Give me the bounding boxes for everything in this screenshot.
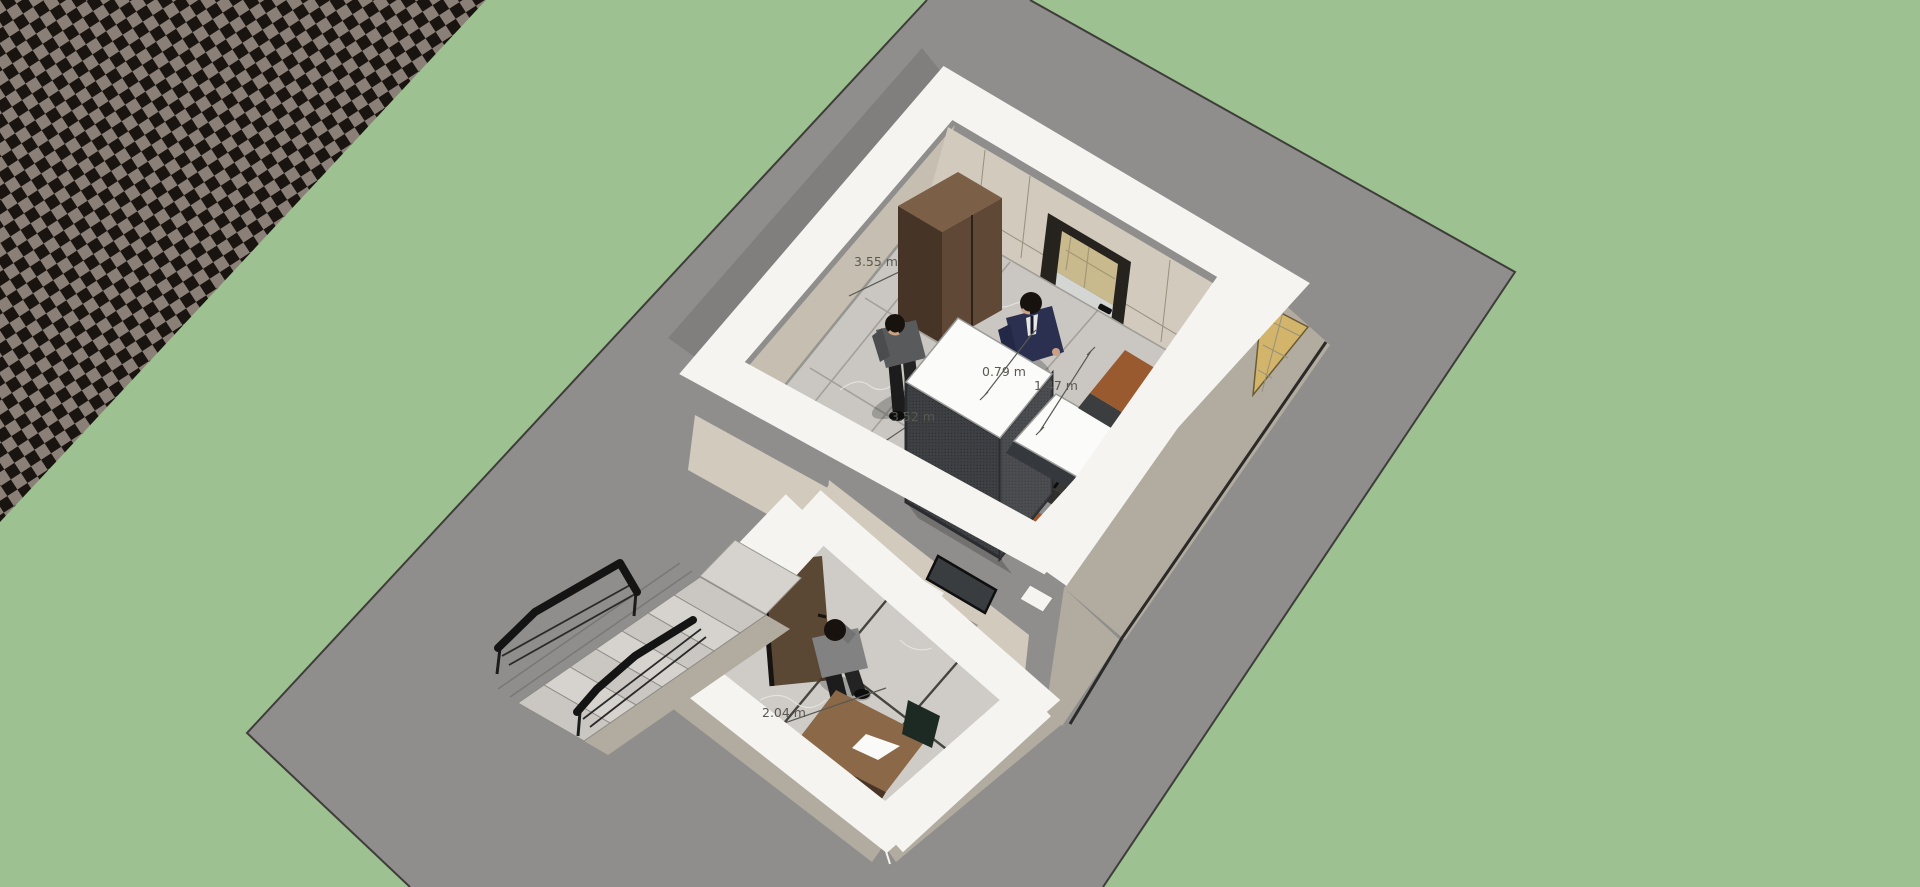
scene-canvas[interactable]: 3.55 m 3.52 m 0.79 m 1.47 m 2.04 m <box>0 0 1920 887</box>
model-viewport[interactable]: 3.55 m 3.52 m 0.79 m 1.47 m 2.04 m <box>0 0 1920 887</box>
hand <box>1052 348 1060 356</box>
dim-label-wall-upper: 3.55 m <box>854 254 898 269</box>
head <box>885 314 905 334</box>
dim-label-floor-gap: 1.47 m <box>1034 378 1078 393</box>
dim-label-floor-upper: 3.52 m <box>891 409 935 424</box>
dim-label-floor-lower: 2.04 m <box>762 705 806 720</box>
wardrobe[interactable] <box>898 172 1002 344</box>
head <box>824 619 846 641</box>
door-handle[interactable] <box>818 615 826 617</box>
dim-label-cabinet-top: 0.79 m <box>982 364 1026 379</box>
